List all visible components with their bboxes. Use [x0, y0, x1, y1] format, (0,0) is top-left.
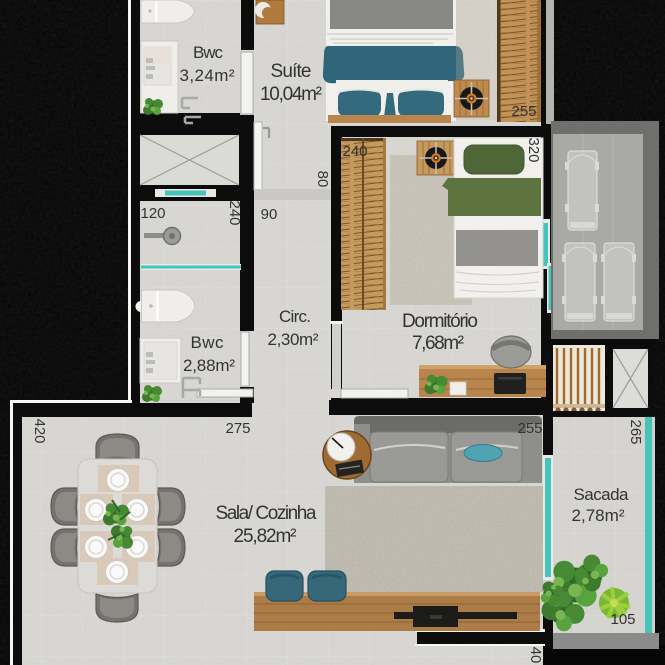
svg-text:2,88m²: 2,88m²: [183, 356, 235, 375]
svg-text:80: 80: [314, 171, 331, 188]
svg-text:40: 40: [527, 647, 544, 664]
svg-text:Circ.: Circ.: [279, 307, 311, 326]
svg-text:265: 265: [627, 419, 644, 444]
svg-text:240: 240: [342, 143, 367, 160]
svg-text:Bwc: Bwc: [193, 43, 224, 62]
svg-text:3,24m²: 3,24m²: [180, 66, 235, 85]
svg-text:255: 255: [517, 420, 542, 437]
svg-text:420: 420: [31, 418, 48, 443]
svg-text:Bwc: Bwc: [191, 333, 225, 352]
svg-text:90: 90: [261, 206, 278, 223]
svg-text:320: 320: [525, 137, 542, 162]
svg-text:255: 255: [511, 103, 536, 120]
svg-text:7,68m²: 7,68m²: [412, 333, 464, 354]
svg-text:Sala/ Cozinha: Sala/ Cozinha: [216, 503, 317, 524]
svg-text:105: 105: [610, 611, 635, 628]
svg-text:120: 120: [140, 205, 165, 222]
svg-text:25,82m²: 25,82m²: [234, 526, 297, 547]
svg-text:Dormitório: Dormitório: [402, 311, 478, 332]
svg-text:240: 240: [226, 200, 243, 225]
svg-text:275: 275: [225, 420, 250, 437]
svg-text:10,04m²: 10,04m²: [260, 84, 322, 105]
svg-text:2,78m²: 2,78m²: [572, 506, 625, 525]
svg-text:Sacada: Sacada: [574, 485, 630, 504]
svg-text:Suíte: Suíte: [271, 61, 312, 82]
svg-text:2,30m²: 2,30m²: [268, 330, 319, 349]
